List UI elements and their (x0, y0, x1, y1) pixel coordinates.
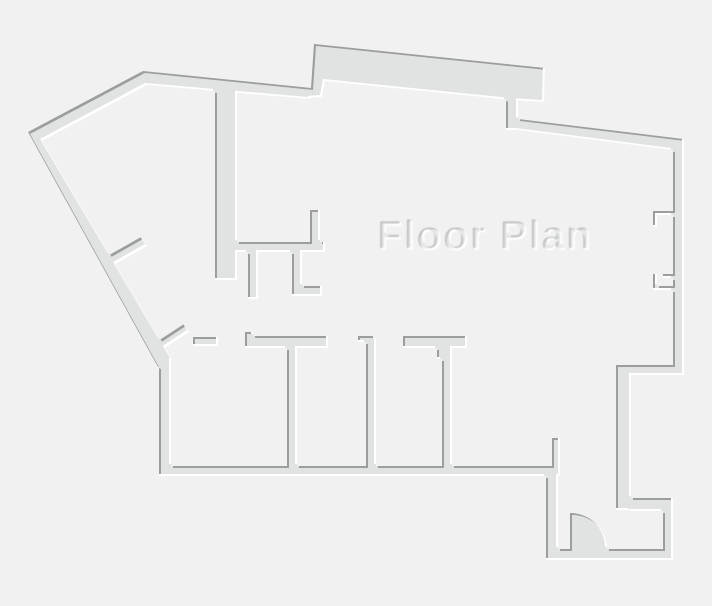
right-wall-pilaster-bottom-cap (663, 274, 673, 278)
room-partition-1 (287, 346, 297, 467)
interior-wall-hanging-b-foot (302, 286, 322, 296)
room-partition-2 (366, 338, 376, 467)
floor-plan: Floor Plan (0, 0, 712, 606)
interior-wall-thick-vertical (215, 88, 237, 280)
room-partition-3 (442, 348, 452, 466)
right-wall-pilaster-top-vertical (653, 211, 657, 227)
interior-wall-hanging-b (292, 251, 302, 296)
outer-wall-left-lower (159, 360, 171, 476)
floor-plan-title: Floor Plan (377, 212, 592, 259)
outer-wall-bottom (159, 466, 560, 476)
outer-wall-right-upper (673, 139, 684, 375)
interior-stub-bend-horizontal (193, 337, 218, 346)
interior-wall-hanging-a (248, 251, 258, 299)
interior-wall-horizontal (237, 242, 325, 252)
floor-plan-canvas: Floor Plan (0, 0, 712, 606)
outer-wall-right-lower (616, 365, 631, 510)
interior-wall-l-vertical (310, 210, 320, 243)
right-wall-pilaster-bottom-horizontal (653, 286, 673, 290)
room-br-bottom-wall (546, 549, 673, 560)
rooms-top-wall-2 (403, 336, 467, 348)
room-br-left-wall (546, 466, 558, 560)
door-jamb-stub (552, 438, 560, 468)
